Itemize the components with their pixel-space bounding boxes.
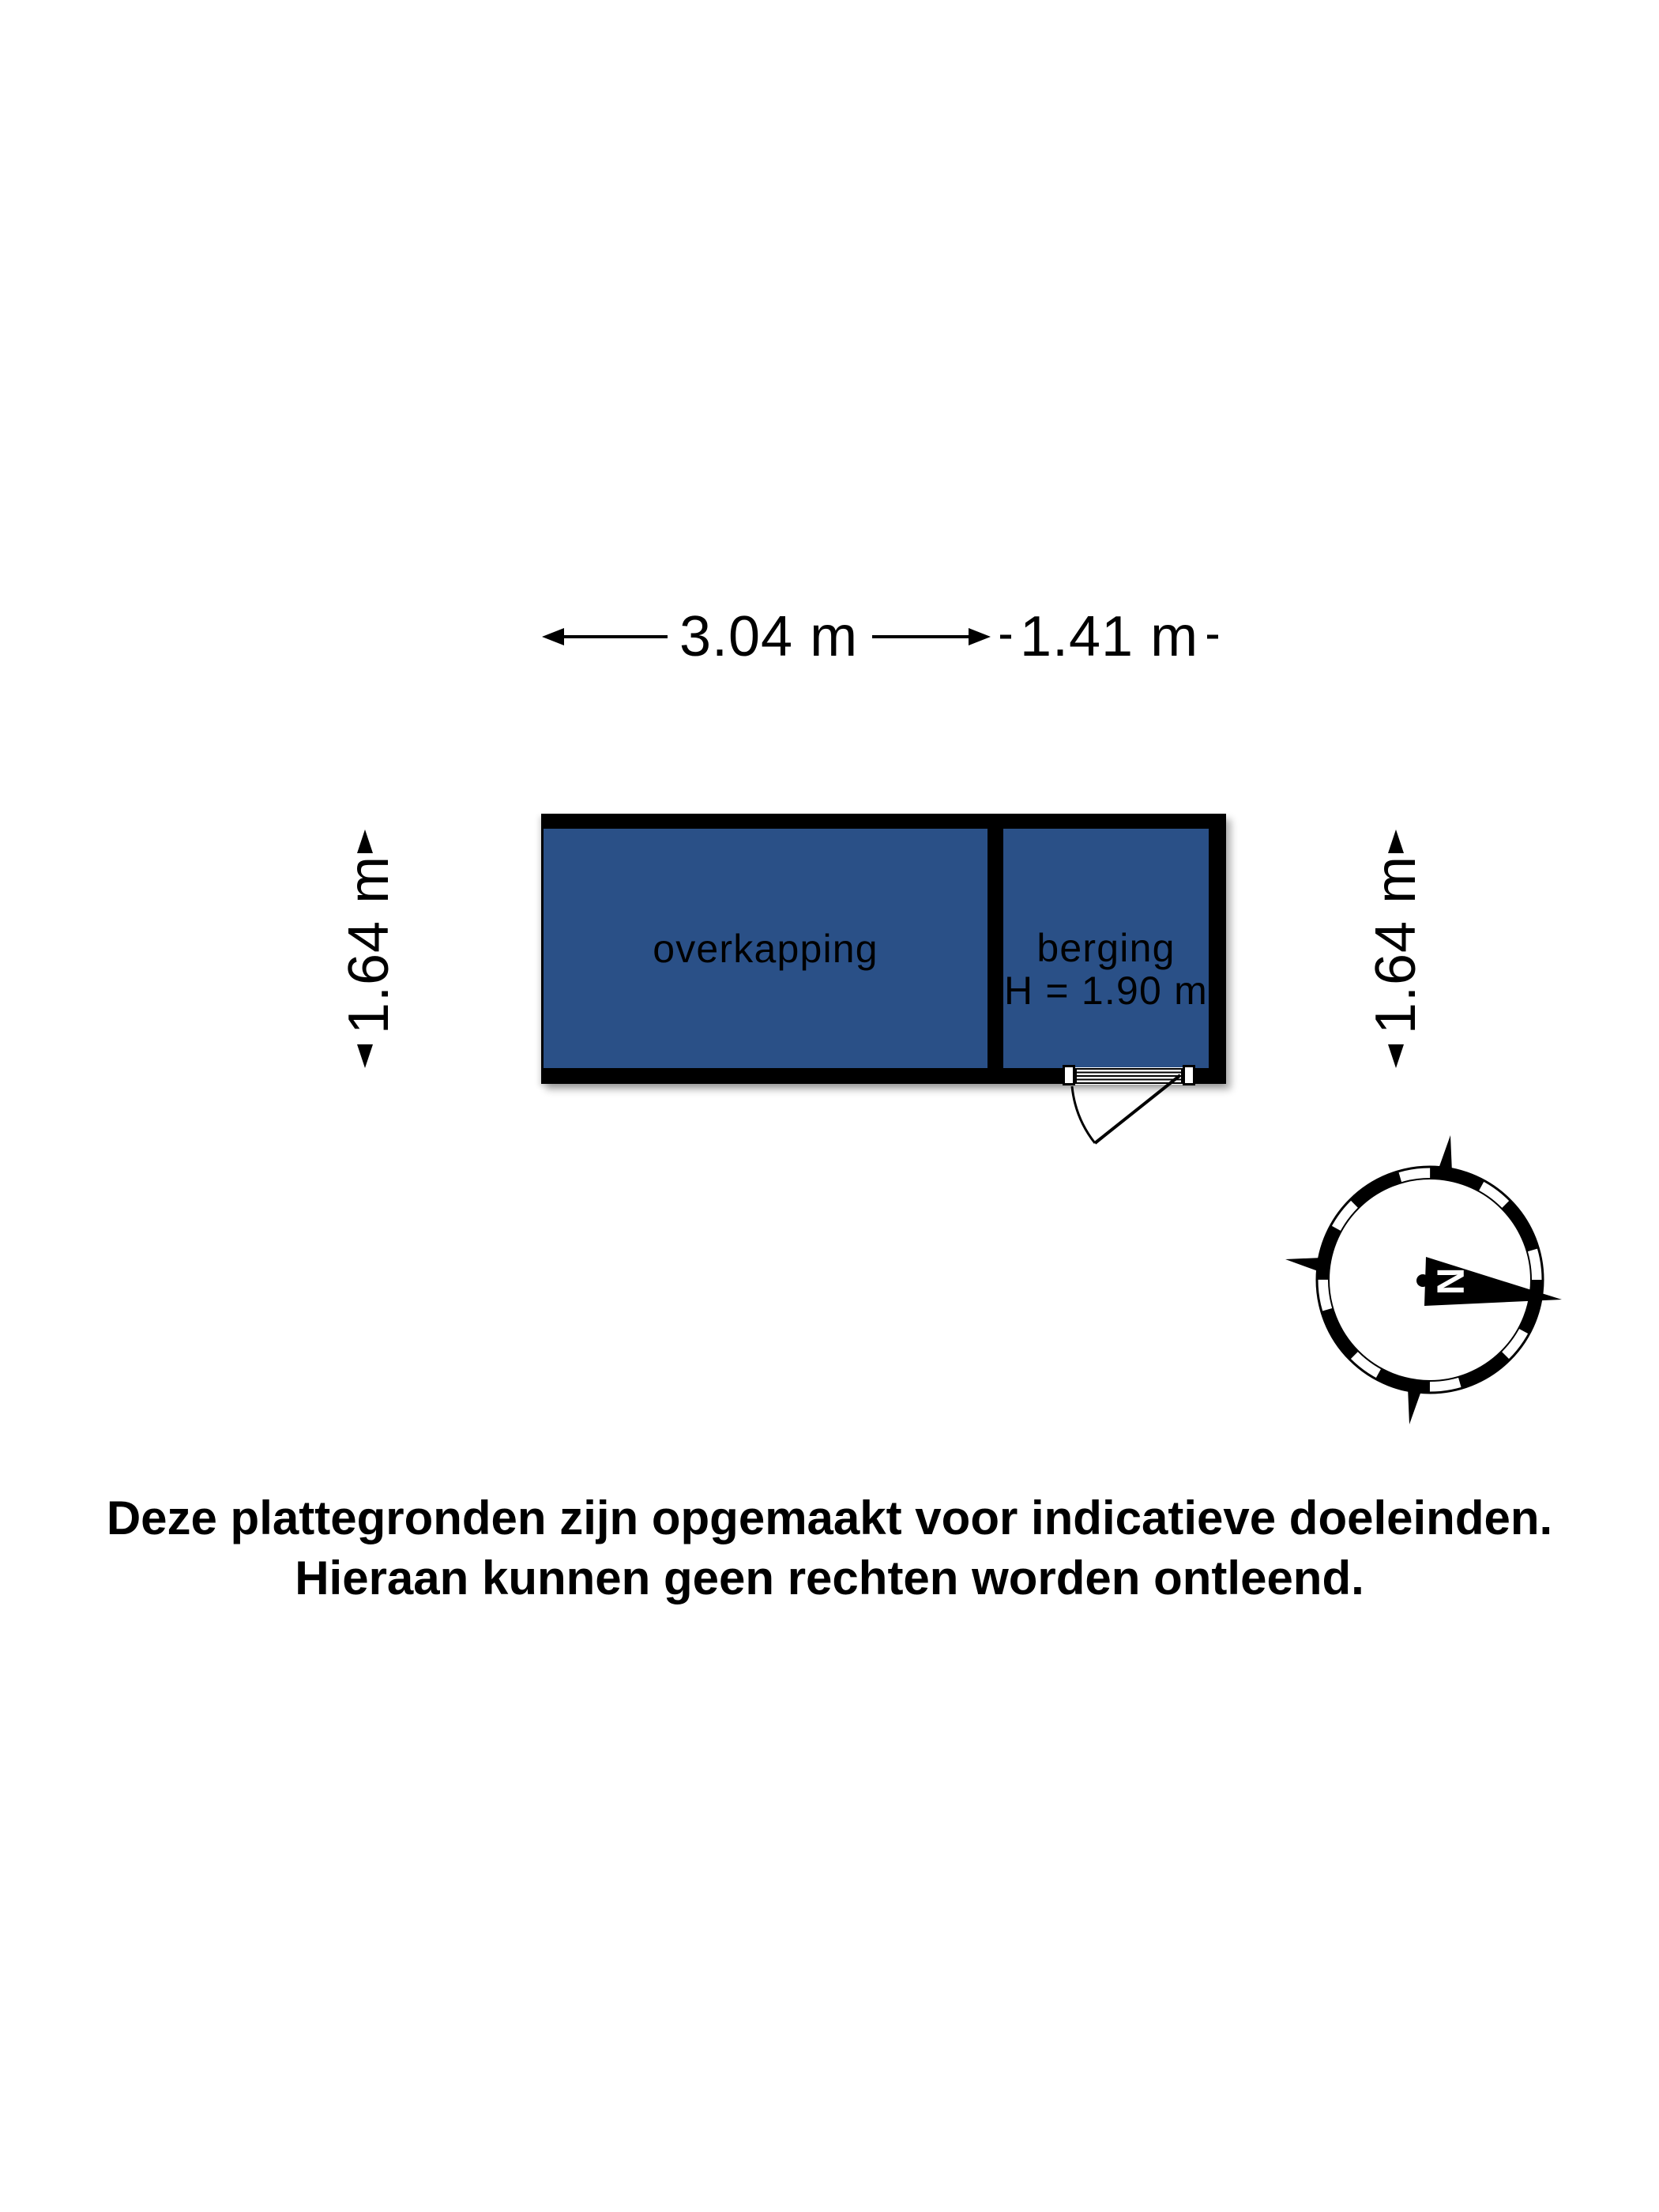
door-jamb-left <box>1063 1065 1075 1085</box>
floor-plan: overkapping berging H = 1.90 m <box>541 814 1226 1084</box>
room-berging-label: berging <box>1004 927 1208 969</box>
floorplan-page: { "plan": { "dimensions": { "top_width_o… <box>0 0 1659 2212</box>
compass-icon: N <box>1285 1135 1562 1424</box>
disclaimer: Deze plattegronden zijn opgemaakt voor i… <box>0 1488 1659 1608</box>
dimension-depth-left: 1.64 m <box>338 747 400 1142</box>
room-overkapping: overkapping <box>541 826 990 1071</box>
room-berging-label-block: berging H = 1.90 m <box>1004 927 1208 1012</box>
north-arrow <box>1424 1257 1562 1306</box>
dimension-width-berging: 1.41 m <box>912 606 1307 668</box>
door-jamb-right <box>1183 1065 1195 1085</box>
compass-spike-left <box>1285 1258 1322 1272</box>
dimension-width-overkapping: 3.04 m <box>571 606 966 668</box>
room-overkapping-label: overkapping <box>653 927 878 970</box>
room-berging: berging H = 1.90 m <box>1001 826 1211 1071</box>
compass-north-letter: N <box>1429 1268 1471 1296</box>
compass-spike-bottom <box>1408 1387 1422 1424</box>
door-swing <box>1072 1075 1180 1143</box>
wall-top <box>541 814 1226 829</box>
door-leaf <box>1075 1068 1183 1084</box>
wall-right <box>1209 814 1226 1084</box>
compass-spike-top <box>1438 1135 1452 1172</box>
disclaimer-line-2: Hieraan kunnen geen rechten worden ontle… <box>0 1548 1659 1608</box>
disclaimer-line-1: Deze plattegronden zijn opgemaakt voor i… <box>0 1488 1659 1548</box>
wall-separator <box>987 814 1003 1084</box>
dimension-depth-right: 1.64 m <box>1365 747 1427 1142</box>
room-berging-height-label: H = 1.90 m <box>1004 969 1208 1012</box>
compass-center-dot <box>1416 1274 1429 1287</box>
